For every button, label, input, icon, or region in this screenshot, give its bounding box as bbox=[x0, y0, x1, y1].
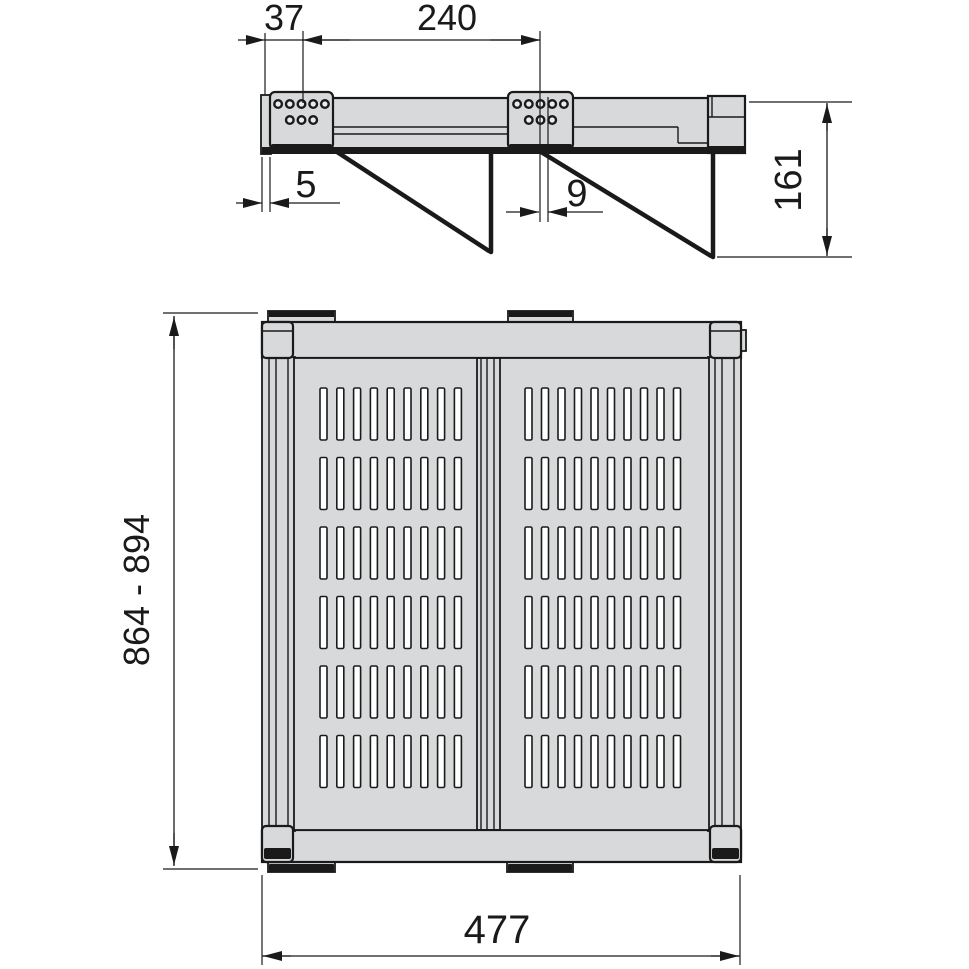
vent-slot bbox=[624, 527, 631, 579]
vent-slot bbox=[542, 388, 549, 440]
vent-slot bbox=[657, 597, 664, 649]
vent-slot bbox=[591, 458, 598, 510]
vent-slot bbox=[421, 666, 428, 718]
vent-slot bbox=[354, 597, 361, 649]
vent-slot bbox=[674, 458, 681, 510]
vent-slot bbox=[591, 388, 598, 440]
vent-slot bbox=[370, 666, 377, 718]
screw-hole bbox=[298, 116, 306, 124]
vent-slot bbox=[542, 736, 549, 788]
vent-slot bbox=[438, 458, 445, 510]
vent-slot bbox=[542, 666, 549, 718]
vent-slot bbox=[404, 666, 411, 718]
dim-5-label: 5 bbox=[295, 164, 316, 206]
screw-hole bbox=[513, 100, 521, 108]
vent-slot bbox=[674, 597, 681, 649]
frame-bottom-rail bbox=[262, 830, 741, 862]
vent-slot bbox=[624, 666, 631, 718]
side-view: 37 240 5 9 161 bbox=[236, 0, 852, 258]
vent-slot bbox=[575, 527, 582, 579]
screw-hole bbox=[298, 100, 306, 108]
vent-slot bbox=[608, 458, 615, 510]
screw-hole bbox=[286, 100, 294, 108]
dim-height-label: 864 - 894 bbox=[116, 514, 157, 666]
vent-slot bbox=[674, 666, 681, 718]
dim-477-label: 477 bbox=[464, 908, 531, 952]
vent-slot bbox=[337, 597, 344, 649]
vent-slot bbox=[337, 666, 344, 718]
screw-hole-row bbox=[286, 116, 317, 124]
vent-slot bbox=[404, 597, 411, 649]
vent-slot bbox=[657, 736, 664, 788]
vent-slot bbox=[337, 527, 344, 579]
vent-slot bbox=[454, 597, 461, 649]
dimension-width: 477 bbox=[262, 875, 740, 965]
vent-slot bbox=[542, 527, 549, 579]
vent-slot bbox=[387, 597, 394, 649]
screw-hole bbox=[525, 100, 533, 108]
vent-slot bbox=[674, 388, 681, 440]
vent-slot bbox=[370, 736, 377, 788]
rail-end-cap bbox=[708, 96, 745, 153]
top-mounting-tab-center bbox=[508, 311, 573, 322]
vent-slot bbox=[608, 666, 615, 718]
technical-drawing: 37 240 5 9 161 bbox=[0, 0, 969, 969]
rail-body bbox=[271, 98, 741, 152]
top-mounting-tab-left bbox=[268, 311, 335, 322]
screw-hole bbox=[321, 100, 329, 108]
vent-slot bbox=[337, 736, 344, 788]
vent-slot bbox=[438, 527, 445, 579]
vent-slot bbox=[320, 666, 327, 718]
drawing-canvas: 37 240 5 9 161 bbox=[0, 0, 969, 969]
vent-slot bbox=[525, 736, 532, 788]
vent-slot bbox=[404, 458, 411, 510]
vent-slot bbox=[657, 458, 664, 510]
corner-cap-bottom-left bbox=[262, 826, 293, 862]
vent-slot bbox=[454, 388, 461, 440]
vent-slot bbox=[641, 666, 648, 718]
side-post-right bbox=[708, 357, 741, 831]
vent-slot bbox=[641, 597, 648, 649]
vent-slot bbox=[624, 458, 631, 510]
vent-slot bbox=[657, 666, 664, 718]
center-divider bbox=[478, 358, 499, 830]
vent-slot bbox=[454, 736, 461, 788]
vent-slot bbox=[387, 388, 394, 440]
dim-37-label: 37 bbox=[264, 0, 304, 38]
screw-hole bbox=[309, 100, 317, 108]
vent-slot bbox=[591, 666, 598, 718]
vent-slot bbox=[575, 736, 582, 788]
vent-slot bbox=[320, 388, 327, 440]
vent-slot bbox=[641, 527, 648, 579]
vent-slot bbox=[421, 388, 428, 440]
mounting-bracket-front bbox=[270, 92, 333, 150]
vent-slot bbox=[404, 736, 411, 788]
vent-slot bbox=[641, 388, 648, 440]
vent-slot bbox=[387, 666, 394, 718]
vent-slot bbox=[438, 666, 445, 718]
side-post-left bbox=[262, 357, 295, 831]
vent-slot bbox=[370, 597, 377, 649]
corner-cap-top-left bbox=[262, 322, 293, 358]
vent-slot bbox=[370, 388, 377, 440]
support-hook-front bbox=[334, 150, 492, 253]
vent-slot bbox=[525, 458, 532, 510]
vent-slot bbox=[575, 458, 582, 510]
corner-cap-top-right bbox=[710, 322, 746, 358]
dim-161-label: 161 bbox=[768, 148, 810, 211]
vent-slot bbox=[404, 527, 411, 579]
dim-9-label: 9 bbox=[566, 173, 587, 215]
vent-slot bbox=[575, 666, 582, 718]
vent-slot bbox=[657, 527, 664, 579]
dim-240-label: 240 bbox=[417, 0, 477, 38]
vent-slot bbox=[608, 388, 615, 440]
vent-slot bbox=[320, 597, 327, 649]
screw-hole bbox=[560, 100, 568, 108]
vent-slot bbox=[558, 597, 565, 649]
screw-hole bbox=[286, 116, 294, 124]
vent-slot bbox=[575, 597, 582, 649]
frame-top-rail bbox=[262, 322, 741, 358]
vent-slot bbox=[558, 388, 565, 440]
vent-slot bbox=[421, 527, 428, 579]
vent-slot bbox=[421, 458, 428, 510]
corner-cap-bottom-right bbox=[710, 826, 741, 862]
vent-slot bbox=[608, 597, 615, 649]
vent-slot bbox=[542, 458, 549, 510]
vent-slot bbox=[525, 666, 532, 718]
vent-slot bbox=[558, 458, 565, 510]
vent-slot bbox=[624, 388, 631, 440]
screw-hole bbox=[525, 116, 533, 124]
vent-slot bbox=[624, 597, 631, 649]
vent-slot bbox=[438, 388, 445, 440]
vent-slot bbox=[337, 388, 344, 440]
vent-slot bbox=[608, 736, 615, 788]
vent-slot bbox=[421, 736, 428, 788]
vent-slot bbox=[454, 666, 461, 718]
vent-slot bbox=[320, 458, 327, 510]
vent-slot bbox=[558, 736, 565, 788]
vent-slot bbox=[624, 736, 631, 788]
screw-hole bbox=[548, 100, 556, 108]
vent-slot bbox=[674, 527, 681, 579]
vent-slot bbox=[591, 597, 598, 649]
vent-slot bbox=[575, 388, 582, 440]
dimension-5: 5 bbox=[236, 157, 340, 212]
vent-slot bbox=[320, 736, 327, 788]
vent-slot bbox=[558, 666, 565, 718]
vent-slot bbox=[525, 527, 532, 579]
screw-hole bbox=[548, 116, 556, 124]
dimension-height-range: 864 - 894 bbox=[116, 313, 258, 869]
vent-slot bbox=[591, 527, 598, 579]
screw-hole bbox=[309, 116, 317, 124]
vent-slot bbox=[370, 527, 377, 579]
vent-slot bbox=[421, 597, 428, 649]
screw-hole bbox=[274, 100, 282, 108]
vent-slot bbox=[558, 527, 565, 579]
vent-slot bbox=[454, 527, 461, 579]
vent-slot bbox=[657, 388, 664, 440]
vent-slot bbox=[674, 736, 681, 788]
vent-slot bbox=[354, 388, 361, 440]
vent-slot bbox=[542, 597, 549, 649]
vent-slot bbox=[404, 388, 411, 440]
vent-slot bbox=[525, 388, 532, 440]
vent-slot bbox=[641, 458, 648, 510]
vent-slot bbox=[454, 458, 461, 510]
vent-slot bbox=[354, 666, 361, 718]
vent-slot bbox=[354, 527, 361, 579]
vent-slot bbox=[438, 736, 445, 788]
vent-slot bbox=[320, 527, 327, 579]
vent-slot bbox=[387, 736, 394, 788]
front-view: 864 - 894 477 bbox=[116, 311, 746, 965]
vent-slot bbox=[387, 458, 394, 510]
vent-slot bbox=[525, 597, 532, 649]
vent-slot bbox=[354, 736, 361, 788]
vent-slot bbox=[591, 736, 598, 788]
vent-slot bbox=[641, 736, 648, 788]
vent-slot bbox=[370, 458, 377, 510]
vent-slot bbox=[354, 458, 361, 510]
vent-slot bbox=[387, 527, 394, 579]
vent-slot bbox=[608, 527, 615, 579]
vent-slot bbox=[337, 458, 344, 510]
vent-slot bbox=[438, 597, 445, 649]
